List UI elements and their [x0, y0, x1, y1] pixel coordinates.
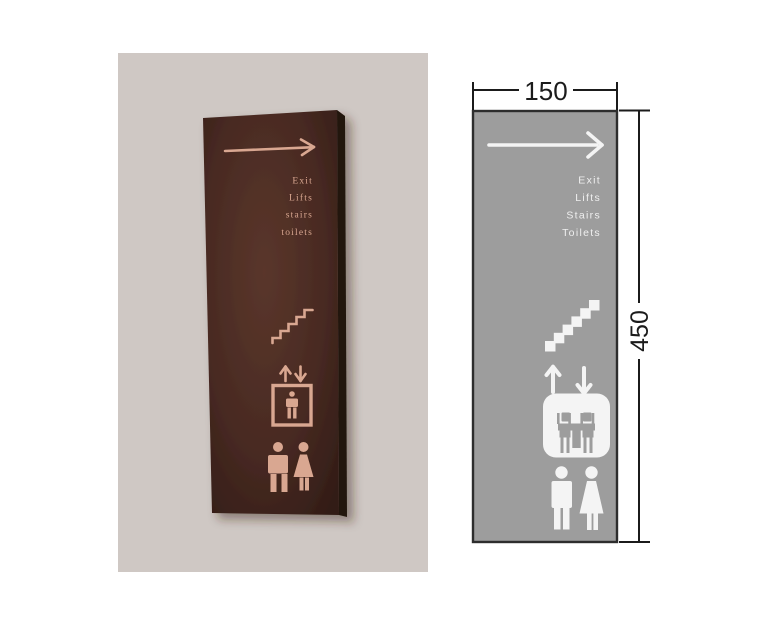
panel-label-lifts: Lifts [289, 193, 313, 204]
spec-label-toilets: Toilets [562, 227, 601, 239]
panel-label-exit: Exit [292, 177, 313, 187]
height-dimension-label: 450 [626, 310, 654, 352]
width-dimension-label: 150 [524, 76, 567, 106]
spec-label-lifts: Lifts [575, 192, 601, 204]
panel-label-stairs: stairs [286, 211, 313, 221]
sheet-canvas: Exit Lifts stairs toilets [0, 0, 770, 620]
signage-product-sheet: Exit Lifts stairs toilets [0, 0, 770, 620]
spec-label-stairs: Stairs [566, 210, 601, 222]
sign-drawing: Exit Lifts Stairs Toilets 150 450 [473, 76, 654, 542]
panel-label-toilets: toilets [281, 228, 313, 238]
spec-label-exit: Exit [578, 175, 601, 187]
sign-photo: Exit Lifts stairs toilets [118, 53, 428, 572]
lift-icon [543, 394, 610, 458]
sign-panel-face [203, 110, 339, 515]
